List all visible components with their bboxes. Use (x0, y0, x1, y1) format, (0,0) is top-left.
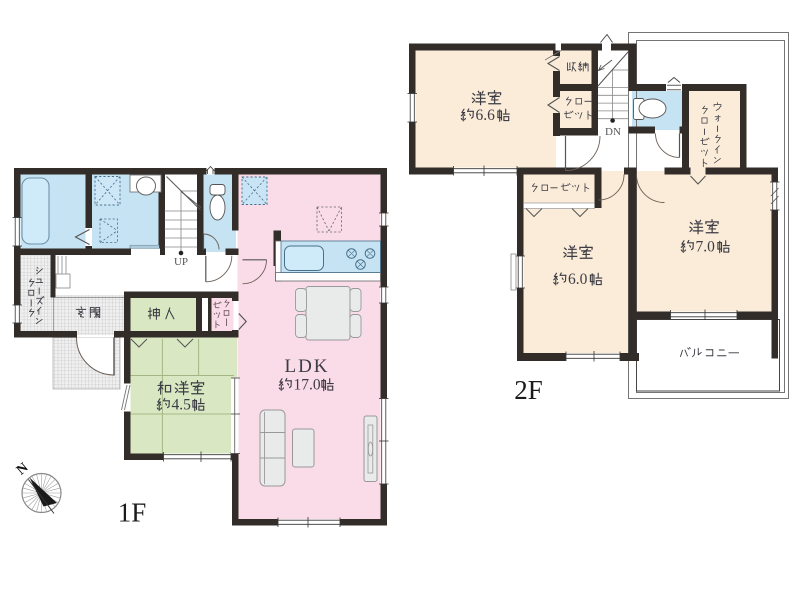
svg-text:2F: 2F (514, 375, 543, 405)
svg-text:UP: UP (174, 256, 188, 268)
svg-text:7.0: 7.0 (696, 239, 716, 256)
svg-text:6.0: 6.0 (568, 271, 588, 288)
svg-text:1F: 1F (118, 498, 147, 528)
svg-text:6.6: 6.6 (476, 107, 496, 124)
svg-text:DN: DN (605, 126, 621, 138)
svg-text:LDK: LDK (284, 356, 329, 377)
svg-text:17.0: 17.0 (294, 377, 321, 394)
svg-text:4.5: 4.5 (172, 397, 192, 414)
